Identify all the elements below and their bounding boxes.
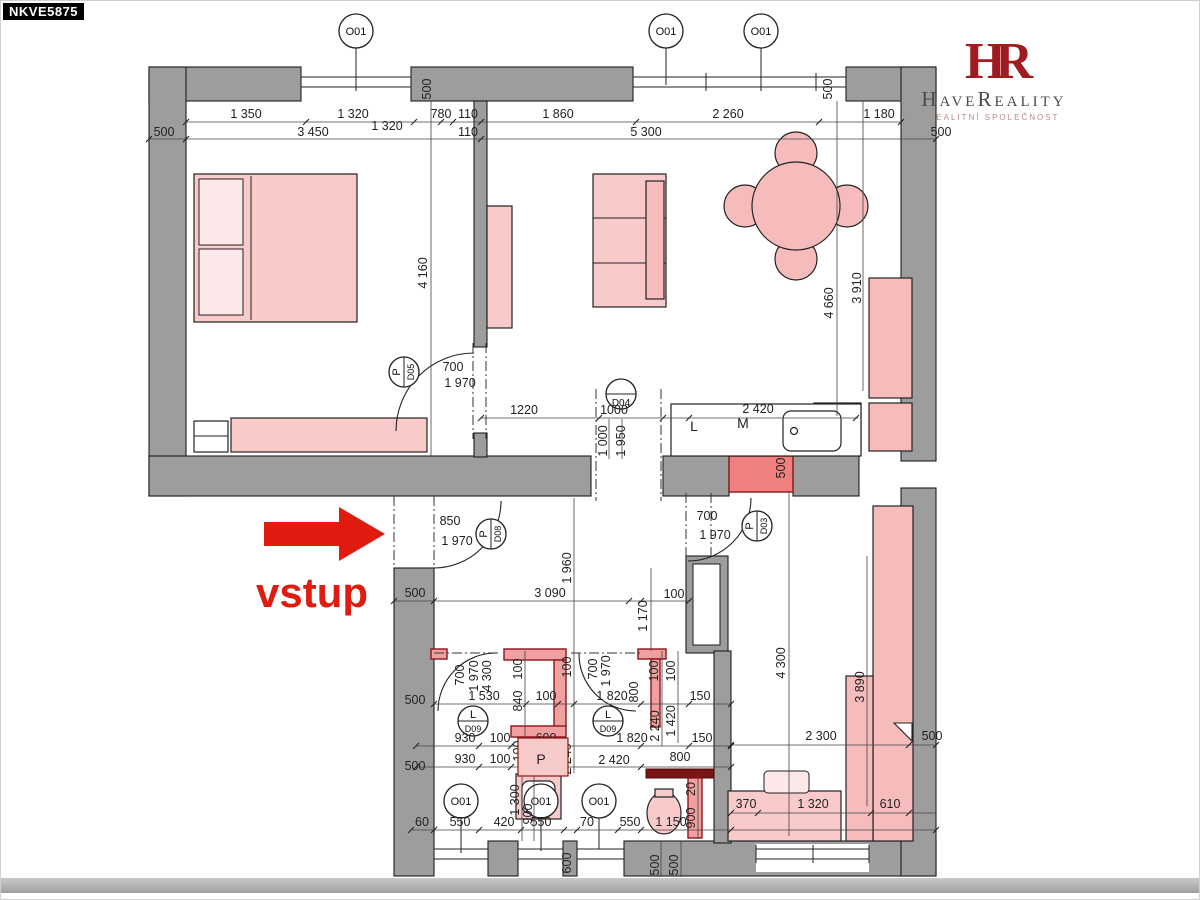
svg-text:500: 500 xyxy=(667,855,681,876)
svg-text:500: 500 xyxy=(922,729,943,743)
svg-text:930: 930 xyxy=(455,731,476,745)
svg-text:700: 700 xyxy=(697,509,718,523)
svg-text:60: 60 xyxy=(415,815,429,829)
svg-text:L: L xyxy=(605,709,611,721)
svg-text:1 320: 1 320 xyxy=(797,797,828,811)
svg-text:100: 100 xyxy=(664,587,685,601)
svg-text:D05: D05 xyxy=(406,364,416,381)
pillow xyxy=(199,249,243,315)
dresser xyxy=(231,418,427,452)
svg-text:700: 700 xyxy=(443,360,464,374)
svg-text:1 320: 1 320 xyxy=(337,107,368,121)
svg-text:D03: D03 xyxy=(759,518,769,535)
svg-text:O01: O01 xyxy=(451,796,472,808)
svg-text:2 300: 2 300 xyxy=(805,729,836,743)
listing-code-badge: NKVE5875 xyxy=(3,3,84,20)
svg-text:1 420: 1 420 xyxy=(664,705,678,736)
pillow xyxy=(199,179,243,245)
svg-text:1 820: 1 820 xyxy=(616,731,647,745)
logo-name: HaveReality xyxy=(884,87,1104,112)
entrance-label: vstup xyxy=(256,569,368,616)
svg-text:D09: D09 xyxy=(600,724,617,734)
page-bottom-bar xyxy=(1,878,1199,893)
svg-text:M: M xyxy=(737,415,749,431)
kitchen-unit xyxy=(869,403,912,451)
svg-text:420: 420 xyxy=(494,815,515,829)
svg-text:780: 780 xyxy=(431,107,452,121)
svg-text:L: L xyxy=(690,418,698,434)
svg-text:500: 500 xyxy=(420,79,434,100)
svg-text:500: 500 xyxy=(774,458,788,479)
svg-text:110: 110 xyxy=(458,107,478,121)
svg-text:700: 700 xyxy=(586,659,600,680)
svg-text:500: 500 xyxy=(648,855,662,876)
svg-text:100: 100 xyxy=(490,752,511,766)
logo-subtitle: REALITNÍ SPOLEČNOST xyxy=(884,113,1104,122)
toilet-tank xyxy=(655,789,673,797)
svg-text:P: P xyxy=(536,751,545,767)
svg-text:2 260: 2 260 xyxy=(712,107,743,121)
svg-text:1 970: 1 970 xyxy=(444,376,475,390)
kitchen-sink xyxy=(783,411,841,451)
svg-text:100: 100 xyxy=(511,659,525,680)
agency-logo: HR HaveReality REALITNÍ SPOLEČNOST xyxy=(884,39,1104,122)
svg-text:1 860: 1 860 xyxy=(542,107,573,121)
svg-text:500: 500 xyxy=(931,125,952,139)
svg-text:100: 100 xyxy=(536,689,557,703)
entrance-arrow-icon xyxy=(264,507,385,561)
sofa-seat xyxy=(646,181,664,299)
svg-text:800: 800 xyxy=(670,750,691,764)
svg-text:3 890: 3 890 xyxy=(853,671,867,702)
svg-text:100: 100 xyxy=(560,657,574,678)
svg-text:700: 700 xyxy=(453,665,467,686)
svg-text:1 970: 1 970 xyxy=(467,660,481,691)
svg-text:4 300: 4 300 xyxy=(774,647,788,678)
svg-text:P: P xyxy=(391,368,403,375)
svg-text:550: 550 xyxy=(450,815,471,829)
svg-text:P: P xyxy=(744,522,756,529)
svg-text:500: 500 xyxy=(405,586,426,600)
svg-text:1000: 1000 xyxy=(600,403,628,417)
svg-text:1 970: 1 970 xyxy=(441,534,472,548)
svg-text:1220: 1220 xyxy=(510,403,538,417)
svg-text:O01: O01 xyxy=(656,26,677,38)
svg-text:610: 610 xyxy=(880,797,901,811)
svg-text:1 950: 1 950 xyxy=(614,425,628,456)
svg-text:500: 500 xyxy=(405,759,426,773)
svg-text:1 960: 1 960 xyxy=(560,552,574,583)
svg-text:70: 70 xyxy=(580,815,594,829)
door-marker-d05: P D05 xyxy=(389,357,419,387)
svg-text:1 970: 1 970 xyxy=(699,528,730,542)
svg-text:P: P xyxy=(478,530,490,537)
svg-text:D08: D08 xyxy=(493,526,503,543)
svg-text:L: L xyxy=(470,709,476,721)
svg-text:1 320: 1 320 xyxy=(371,119,402,133)
svg-text:600: 600 xyxy=(560,853,574,874)
svg-text:840: 840 xyxy=(511,691,525,712)
floor-plan-page: NKVE5875 HR HaveReality REALITNÍ SPOLEČN… xyxy=(0,0,1200,900)
svg-text:1 150: 1 150 xyxy=(655,815,686,829)
door-marker-d08: P D08 xyxy=(476,519,506,549)
svg-text:100: 100 xyxy=(647,661,661,682)
svg-text:1 820: 1 820 xyxy=(596,689,627,703)
svg-text:110: 110 xyxy=(458,125,478,139)
svg-text:O01: O01 xyxy=(751,26,772,38)
entrance-annotation: vstup xyxy=(256,507,385,616)
svg-text:500: 500 xyxy=(154,125,175,139)
pillow xyxy=(764,771,809,793)
svg-text:500: 500 xyxy=(821,79,835,100)
svg-text:1 350: 1 350 xyxy=(230,107,261,121)
wardrobe xyxy=(873,506,913,841)
svg-text:900: 900 xyxy=(521,804,535,825)
svg-text:150: 150 xyxy=(690,689,711,703)
svg-text:4 660: 4 660 xyxy=(822,287,836,318)
svg-text:3 090: 3 090 xyxy=(534,586,565,600)
svg-text:500: 500 xyxy=(405,693,426,707)
svg-text:150: 150 xyxy=(692,731,713,745)
svg-text:550: 550 xyxy=(620,815,641,829)
svg-text:1 530: 1 530 xyxy=(468,689,499,703)
svg-text:1 300: 1 300 xyxy=(508,784,522,815)
svg-text:2 240: 2 240 xyxy=(648,710,662,741)
svg-text:3 450: 3 450 xyxy=(297,125,328,139)
svg-text:1 170: 1 170 xyxy=(636,600,650,631)
svg-text:100: 100 xyxy=(490,731,511,745)
svg-text:O01: O01 xyxy=(346,26,367,38)
svg-text:O01: O01 xyxy=(589,796,610,808)
svg-text:5 300: 5 300 xyxy=(630,125,661,139)
svg-text:370: 370 xyxy=(736,797,757,811)
door-marker-d03: P D03 xyxy=(742,511,772,541)
svg-text:100: 100 xyxy=(664,661,678,682)
svg-text:3 910: 3 910 xyxy=(850,272,864,303)
svg-text:850: 850 xyxy=(440,514,461,528)
kitchen-tall-unit xyxy=(869,278,912,398)
svg-text:1 970: 1 970 xyxy=(599,655,613,686)
svg-text:2 420: 2 420 xyxy=(742,402,773,416)
svg-text:4 300: 4 300 xyxy=(480,660,494,691)
svg-text:930: 930 xyxy=(455,752,476,766)
svg-text:4 160: 4 160 xyxy=(416,257,430,288)
svg-text:20: 20 xyxy=(684,782,698,796)
svg-text:2 420: 2 420 xyxy=(598,753,629,767)
dining-table xyxy=(752,162,840,250)
shelf xyxy=(487,206,512,328)
svg-text:1 000: 1 000 xyxy=(596,425,610,456)
logo-monogram: HR xyxy=(884,39,1104,85)
svg-text:800: 800 xyxy=(627,682,641,703)
floor-plan-drawing: P D05 D04 P D08 P D03 xyxy=(1,1,1200,900)
